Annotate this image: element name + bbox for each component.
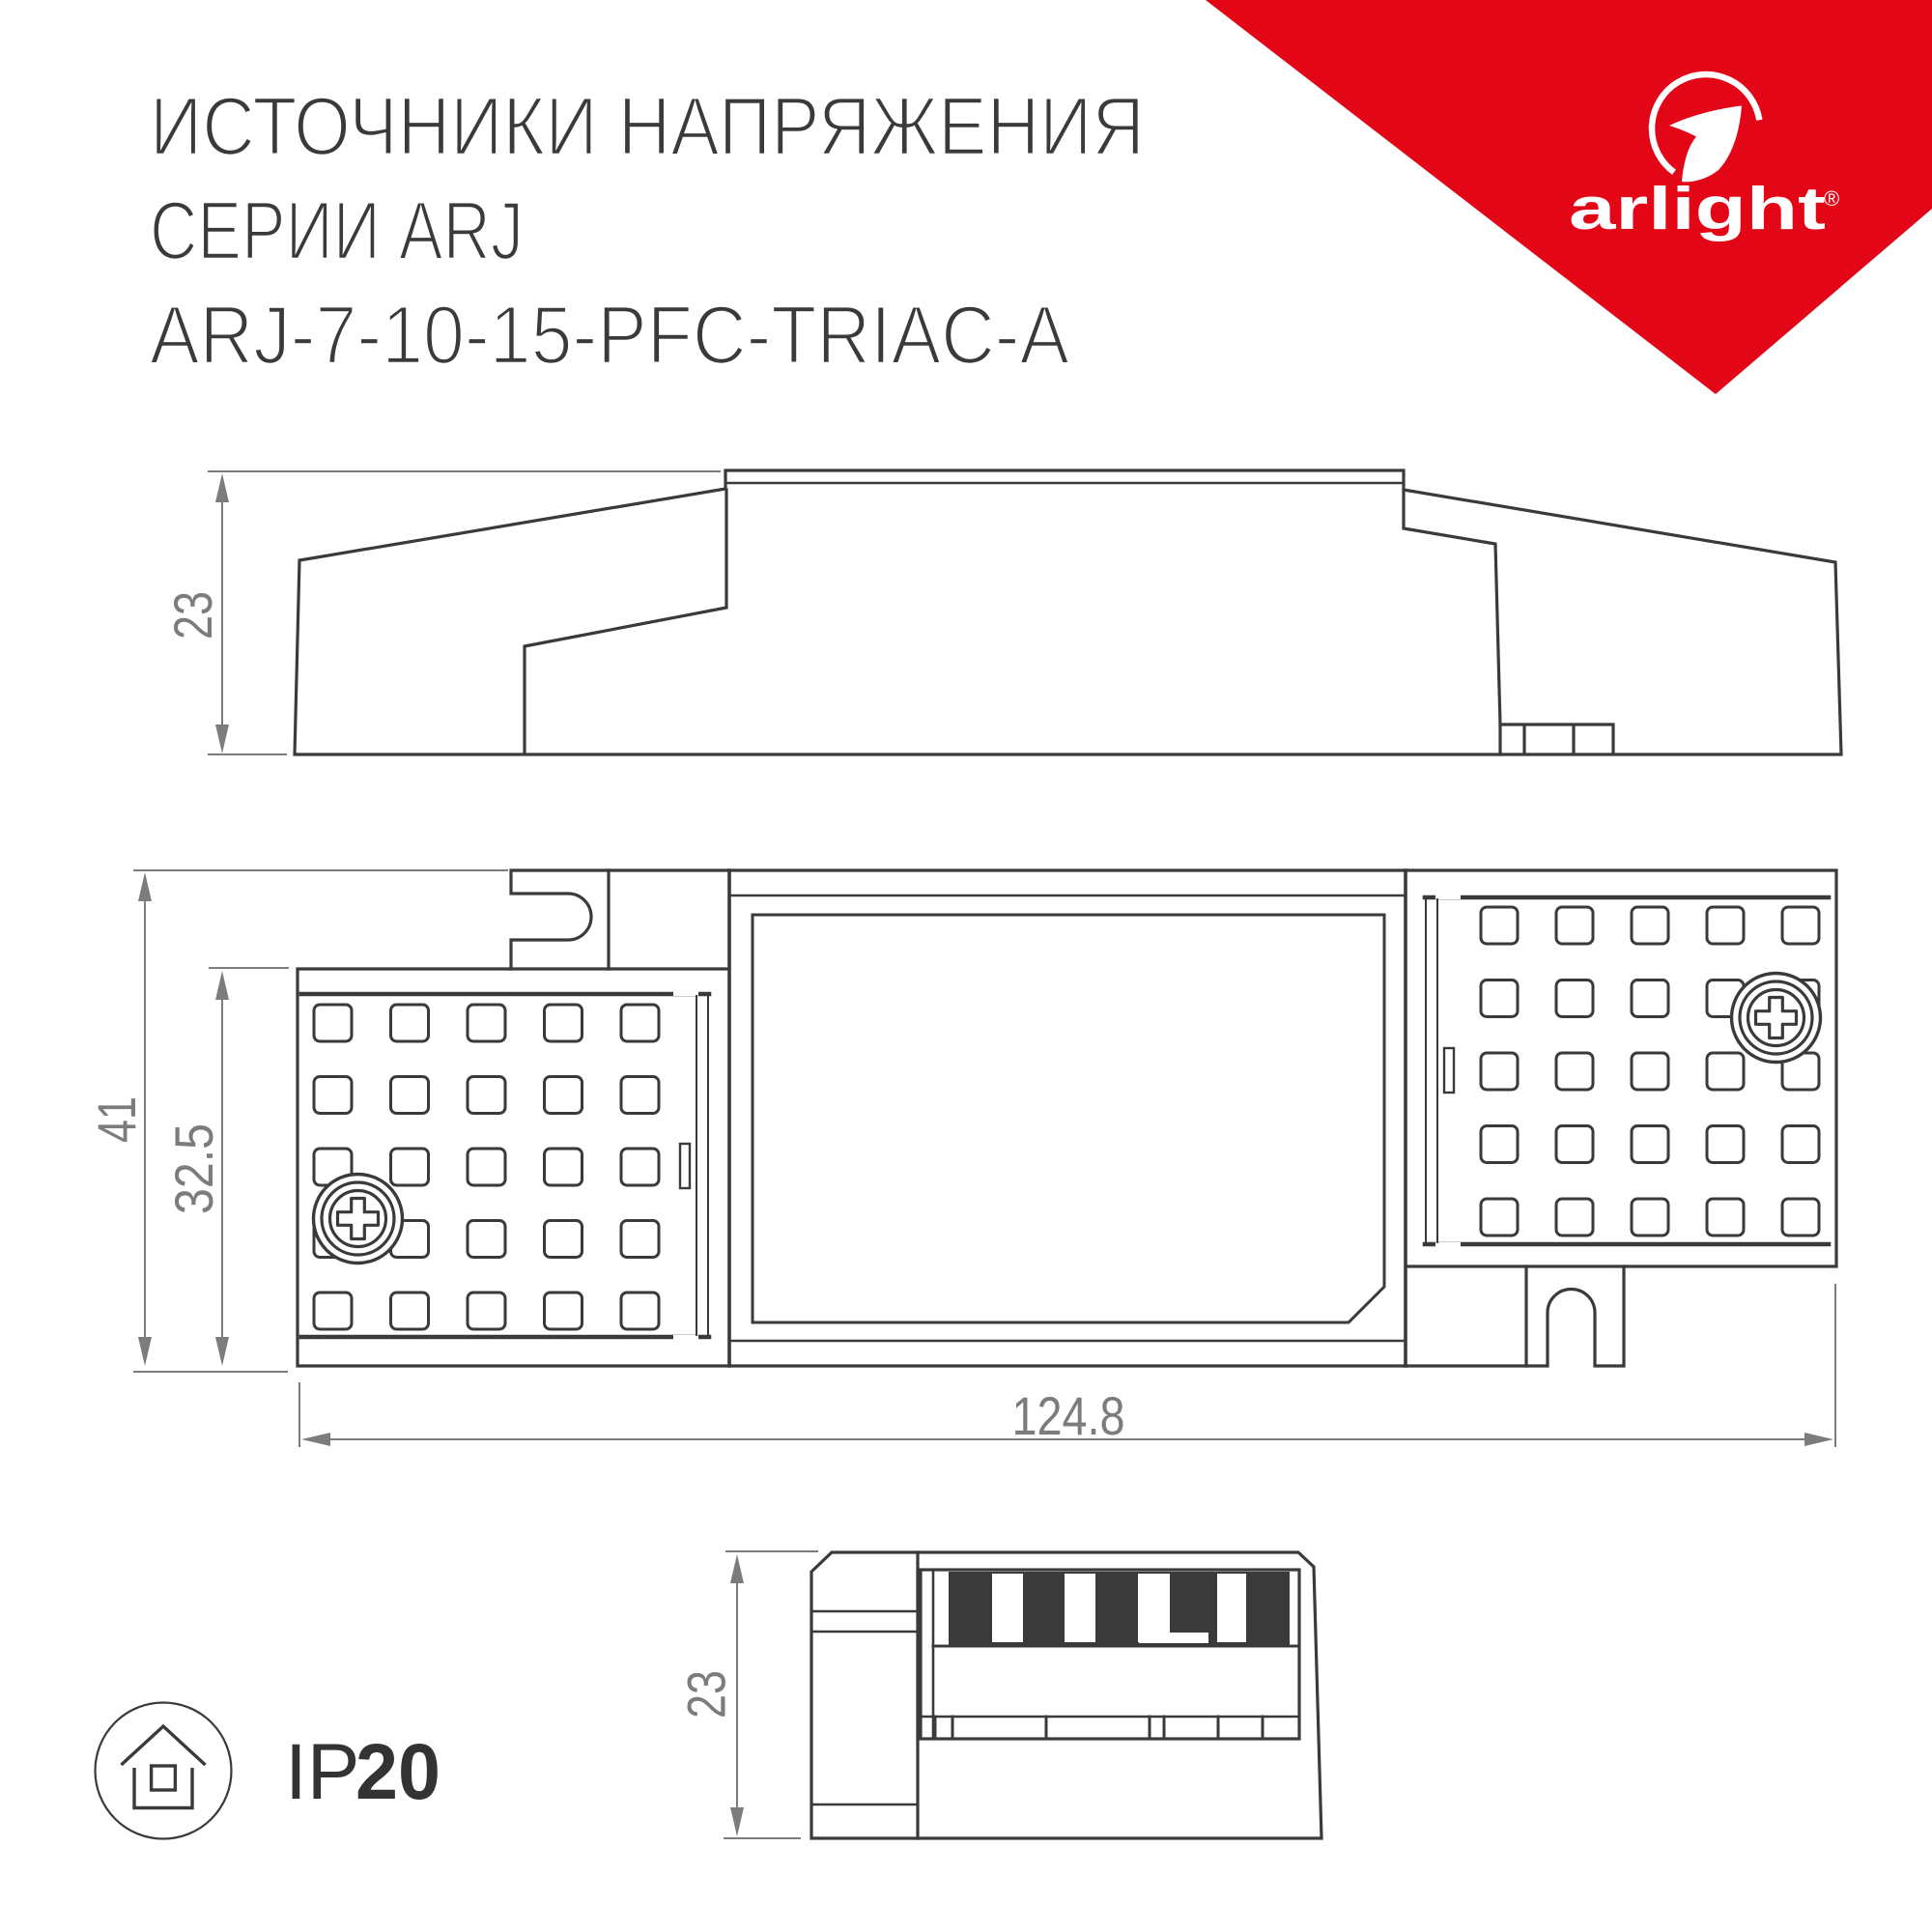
svg-text:20: 20 <box>355 1728 440 1816</box>
svg-text:23: 23 <box>162 591 223 639</box>
svg-text:IP: IP <box>285 1728 359 1816</box>
svg-text:124.8: 124.8 <box>1012 1385 1125 1446</box>
svg-text:СЕРИИ ARJ: СЕРИИ ARJ <box>150 185 524 277</box>
svg-text:23: 23 <box>676 1670 737 1719</box>
svg-text:arlight: arlight <box>1569 176 1826 242</box>
svg-text:ARJ-7-10-15-PFC-TRIAC-A: ARJ-7-10-15-PFC-TRIAC-A <box>150 290 1069 382</box>
svg-text:41: 41 <box>86 1096 147 1143</box>
svg-text:32.5: 32.5 <box>163 1123 224 1214</box>
svg-text:ИСТОЧНИКИ НАПРЯЖЕНИЯ: ИСТОЧНИКИ НАПРЯЖЕНИЯ <box>150 81 1145 173</box>
svg-text:®: ® <box>1824 186 1839 211</box>
